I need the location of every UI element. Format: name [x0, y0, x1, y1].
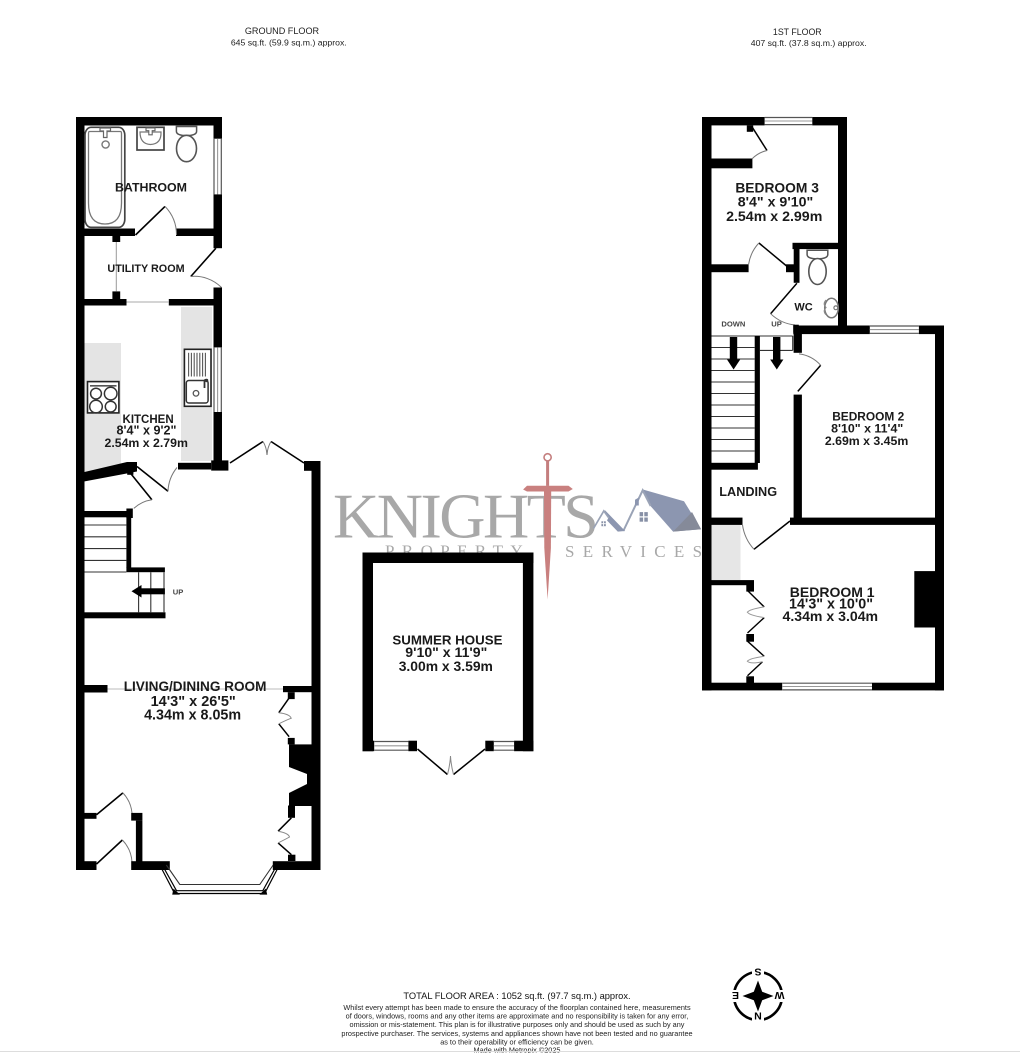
svg-text:1ST FLOOR: 1ST FLOOR — [773, 27, 822, 37]
svg-text:N: N — [754, 1010, 762, 1022]
svg-text:2.54m x 2.79m: 2.54m x 2.79m — [104, 436, 187, 450]
svg-text:UP: UP — [771, 319, 782, 328]
svg-text:UTILITY ROOM: UTILITY ROOM — [107, 263, 184, 275]
svg-text:LIVING/DINING ROOM: LIVING/DINING ROOM — [124, 679, 267, 694]
svg-text:TOTAL FLOOR AREA : 1052 sq.ft.: TOTAL FLOOR AREA : 1052 sq.ft. (97.7 sq.… — [403, 991, 630, 1001]
svg-text:WC: WC — [794, 302, 812, 314]
svg-text:4.34m x 3.04m: 4.34m x 3.04m — [782, 608, 878, 624]
svg-text:W: W — [774, 989, 784, 1001]
svg-text:LANDING: LANDING — [719, 485, 777, 499]
svg-text:GROUND FLOOR: GROUND FLOOR — [245, 26, 320, 36]
svg-text:3.00m x 3.59m: 3.00m x 3.59m — [399, 658, 493, 674]
svg-text:DOWN: DOWN — [721, 319, 745, 328]
svg-text:2.54m x 2.99m: 2.54m x 2.99m — [726, 209, 822, 225]
svg-text:BATHROOM: BATHROOM — [115, 181, 187, 195]
svg-text:645 sq.ft. (59.9 sq.m.) approx: 645 sq.ft. (59.9 sq.m.) approx. — [231, 38, 347, 48]
svg-text:SERVICES: SERVICES — [565, 542, 710, 561]
svg-text:4.34m x 8.05m: 4.34m x 8.05m — [144, 708, 241, 724]
svg-text:2.69m x 3.45m: 2.69m x 3.45m — [825, 434, 908, 448]
svg-text:BEDROOM 3: BEDROOM 3 — [735, 181, 819, 196]
svg-text:E: E — [732, 989, 739, 1001]
svg-text:S: S — [754, 966, 761, 978]
svg-text:407 sq.ft. (37.8 sq.m.) approx: 407 sq.ft. (37.8 sq.m.) approx. — [751, 38, 867, 48]
svg-text:UP: UP — [173, 587, 184, 596]
